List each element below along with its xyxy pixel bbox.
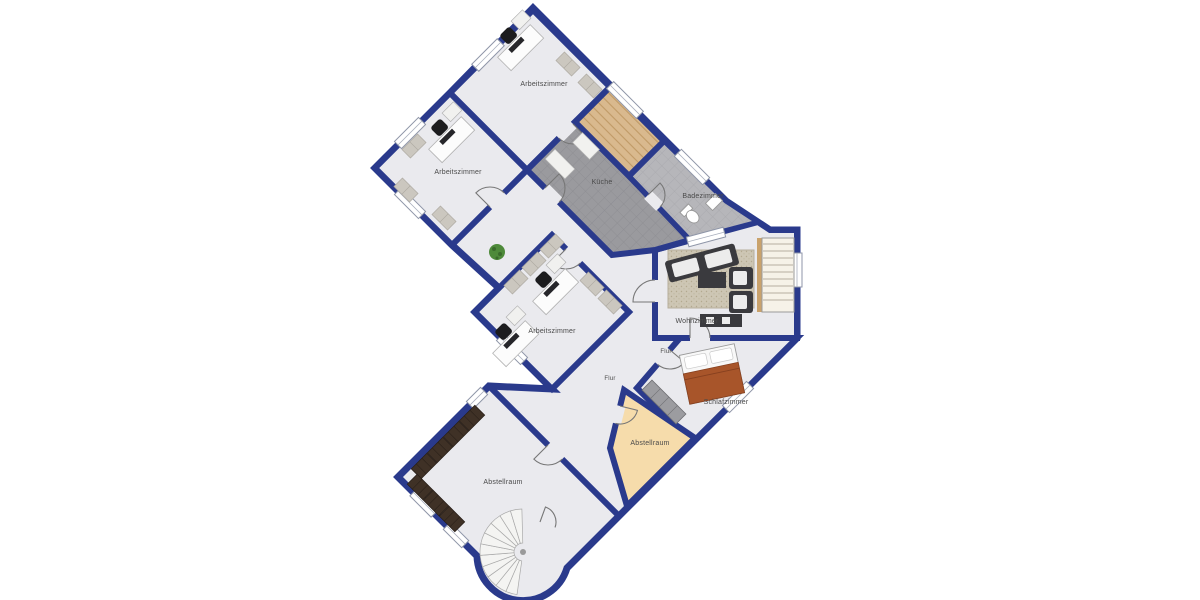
label-kueche: Küche [592,179,613,186]
armchair-icon [729,267,753,289]
label-schlafzimmer: Schlafzimmer [704,399,749,406]
label-abstellraum-klein: Abstellraum [630,440,669,447]
floor-plan-svg: Arbeitszimmer Arbeitszimmer Küche Badezi… [0,0,1200,600]
label-wohnzimmer: Wohnzimmer [675,318,719,325]
label-abstellraum-gross: Abstellraum [483,479,522,486]
label-badezimmer: Badezimmer [682,193,724,200]
label-flur-oben: Flur [660,349,671,355]
spiral-hub [520,549,526,555]
label-flur-unten: Flur [604,376,615,382]
label-arbeitszimmer-links: Arbeitszimmer [434,169,482,176]
floor-plan-canvas: Arbeitszimmer Arbeitszimmer Küche Badezi… [0,0,1200,600]
staircase-icon [757,238,794,312]
label-arbeitszimmer-oben: Arbeitszimmer [520,81,568,88]
plant-icon [489,244,505,260]
coffee-table-icon [698,272,726,288]
armchair-icon [729,291,753,313]
label-arbeitszimmer-mitte: Arbeitszimmer [528,328,576,335]
